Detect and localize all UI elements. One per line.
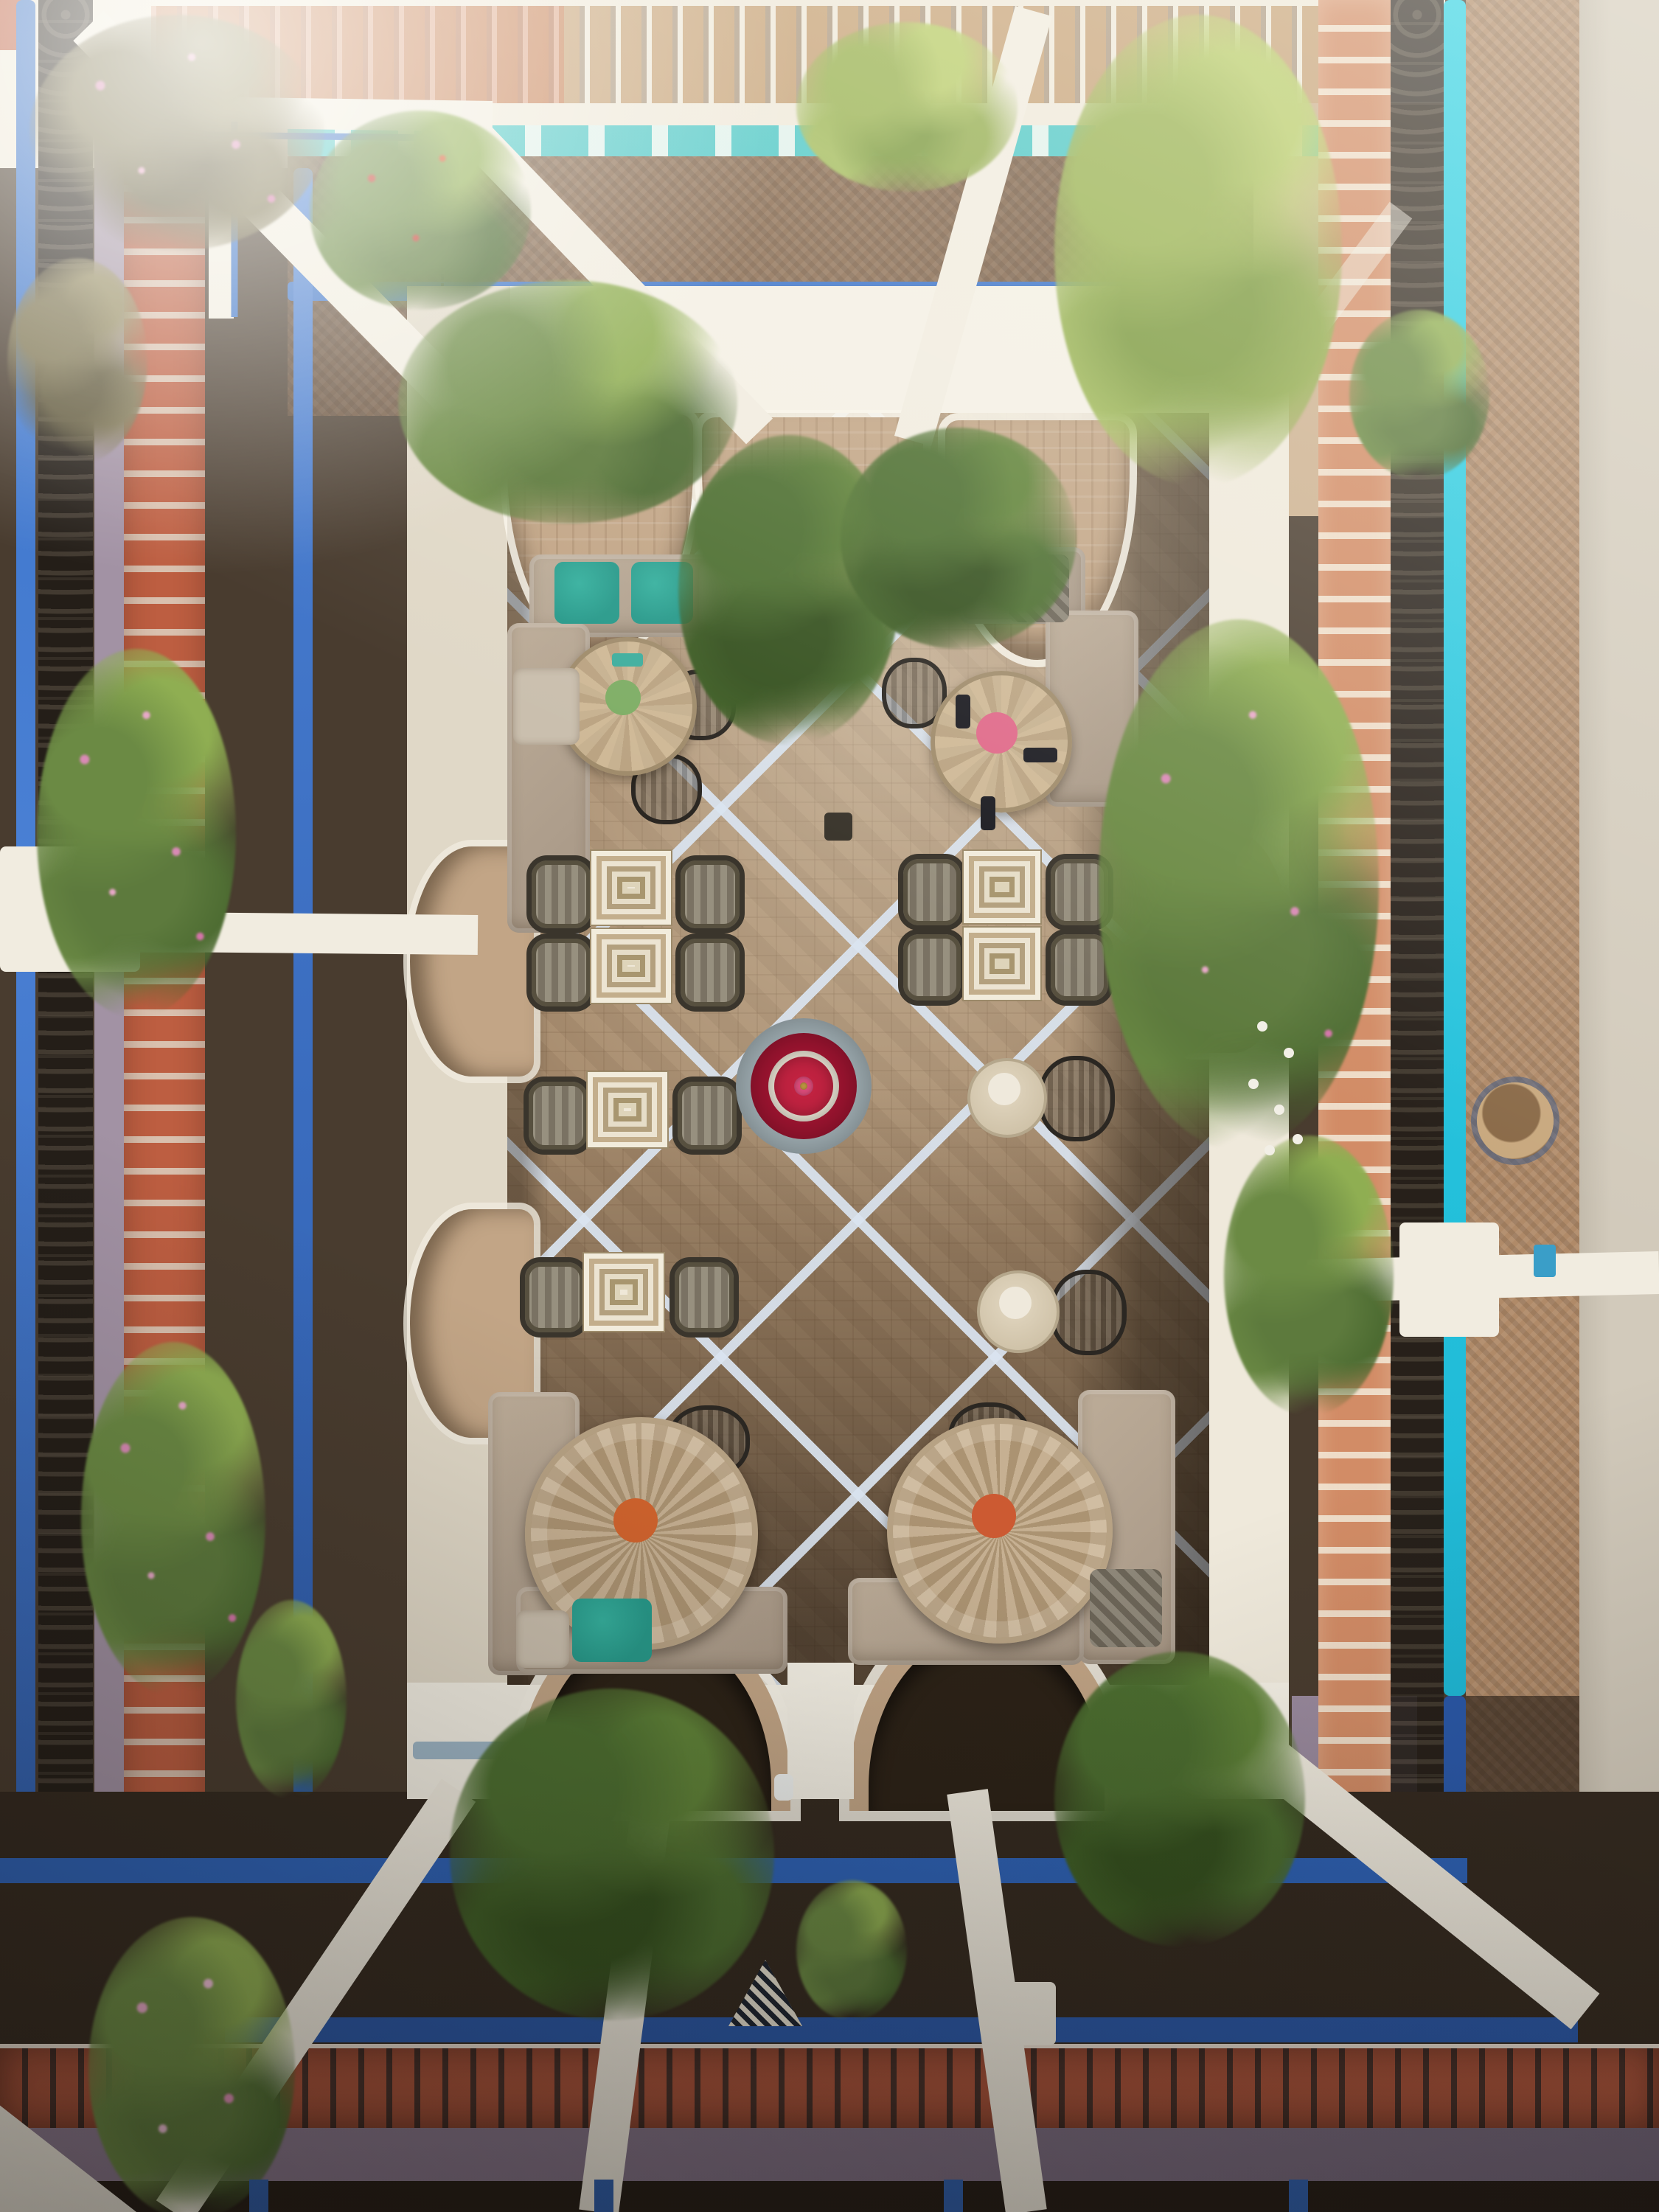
fallen-petal bbox=[1257, 1021, 1267, 1032]
fallen-petal bbox=[1274, 1105, 1284, 1115]
fallen-petal bbox=[1248, 1079, 1259, 1089]
blue-post bbox=[944, 2180, 963, 2212]
table-setting bbox=[988, 1073, 1020, 1105]
flower-vase bbox=[976, 712, 1018, 754]
phone bbox=[956, 695, 970, 728]
flower-vase bbox=[972, 1494, 1016, 1538]
blue-post bbox=[249, 2180, 268, 2212]
table-setting bbox=[999, 1287, 1032, 1319]
fallen-petal bbox=[1293, 1134, 1303, 1144]
riad-courtyard-photo bbox=[0, 0, 1659, 2212]
flower-vase bbox=[613, 1498, 658, 1543]
water-bottle bbox=[774, 1774, 793, 1801]
flower-vase bbox=[605, 680, 641, 715]
blue-tile-inlay bbox=[1534, 1245, 1556, 1277]
blue-post bbox=[1289, 2180, 1308, 2212]
details-layer bbox=[0, 0, 1659, 2212]
phone bbox=[981, 796, 995, 830]
menu-card bbox=[612, 653, 643, 667]
blue-post bbox=[594, 2180, 613, 2212]
fallen-petal bbox=[1265, 1145, 1275, 1155]
floor-drain bbox=[824, 813, 852, 841]
phone bbox=[1023, 748, 1057, 762]
fallen-petal bbox=[1284, 1048, 1294, 1058]
